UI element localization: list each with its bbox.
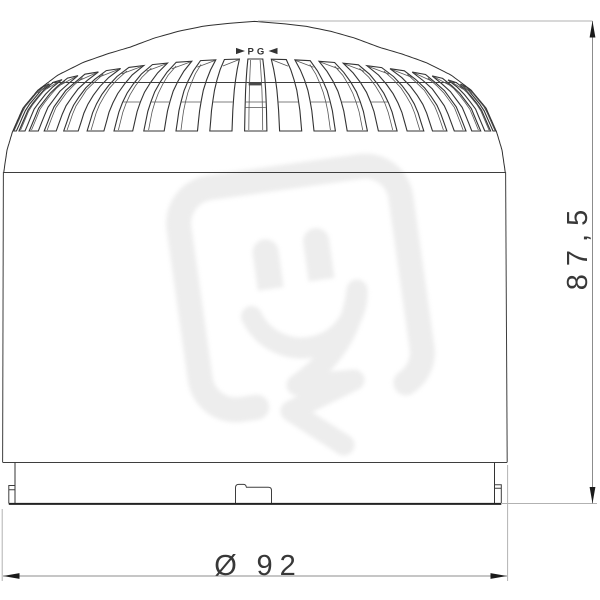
svg-text:Ø 92: Ø 92	[214, 550, 303, 582]
svg-text:87,5: 87,5	[562, 202, 594, 290]
svg-text:PG: PG	[248, 47, 268, 58]
